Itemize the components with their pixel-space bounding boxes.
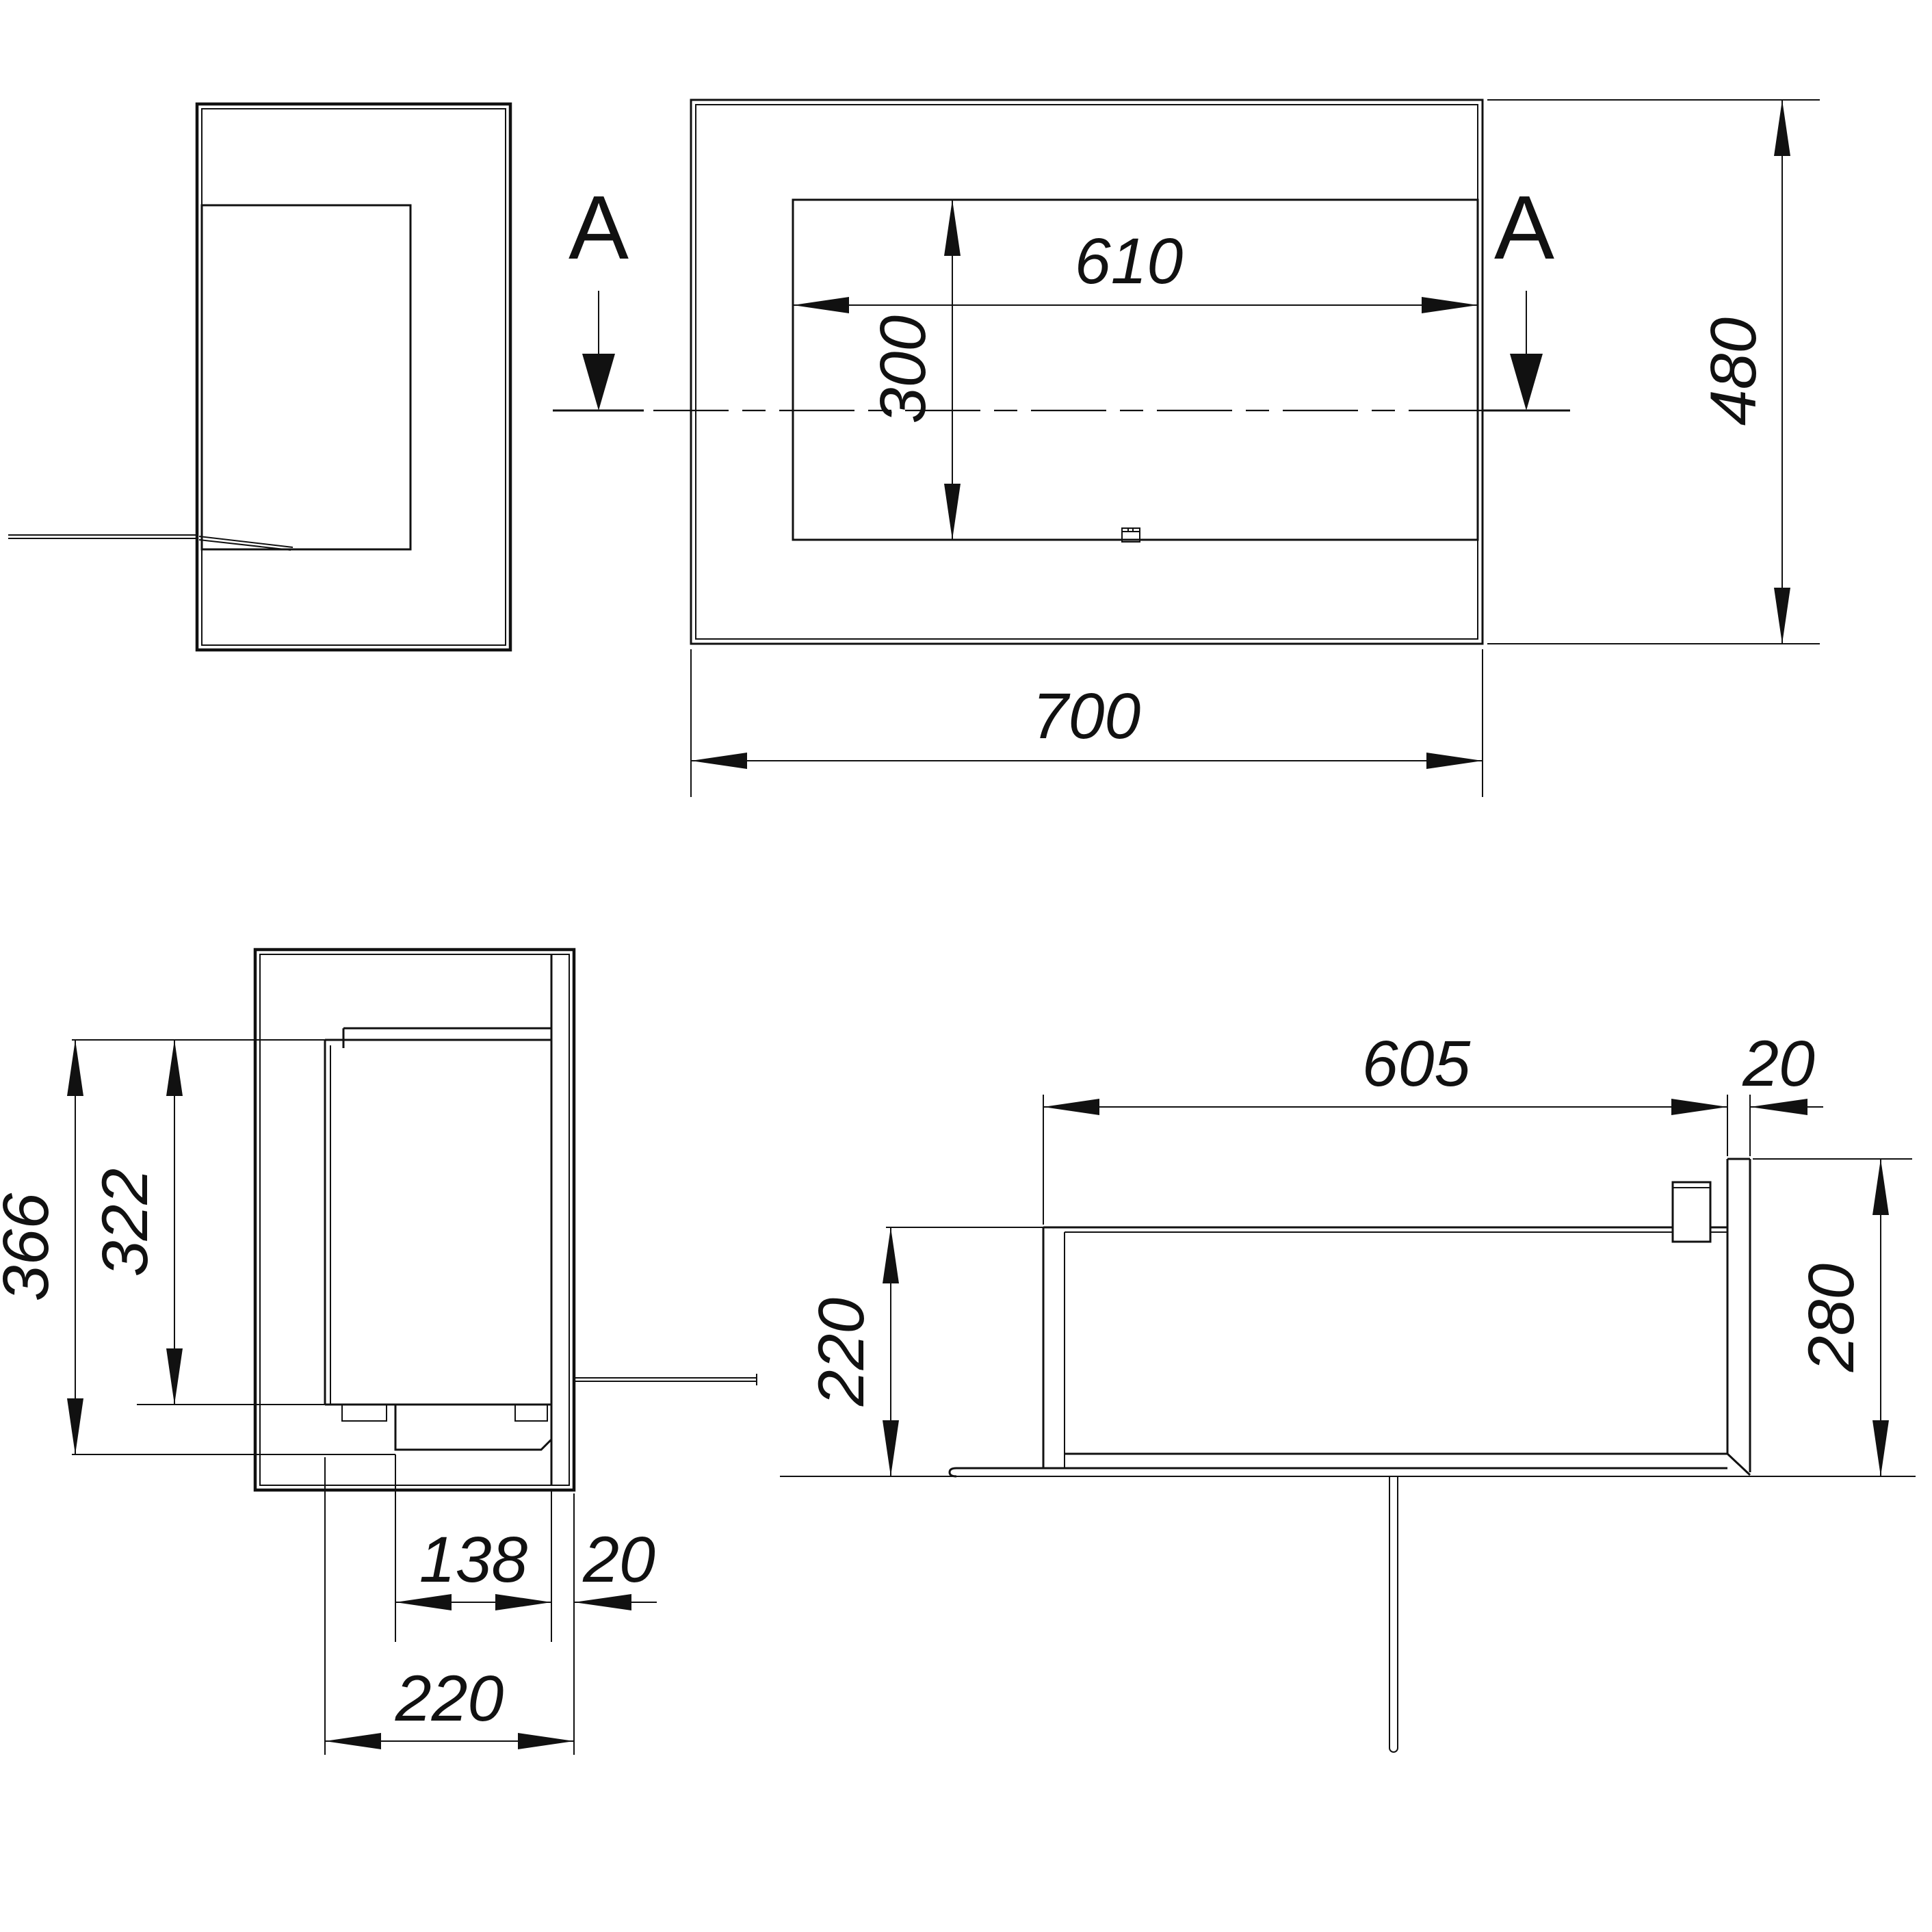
dim-glass-thickness-top: 20 [1742, 1028, 1823, 1156]
drawing-sheet: A A 610 300 480 [0, 0, 1932, 1932]
section-label-left: A [569, 177, 629, 278]
section-label-right: A [1494, 177, 1554, 278]
section-arrow-icon [1510, 354, 1543, 410]
dim-depth-top: 220 [805, 1227, 1043, 1476]
side-view-outer-body [197, 104, 510, 650]
section-outer-body [255, 950, 574, 1490]
section-arrow-icon [582, 354, 615, 410]
hanger-tab-left [342, 1405, 387, 1421]
dim-glass-thickness-text: 20 [582, 1524, 655, 1596]
side-view [8, 104, 510, 650]
dim-total-height: 366 [0, 1040, 395, 1454]
back-wall [1043, 1227, 1727, 1232]
dim-depth-text: 220 [395, 1662, 504, 1735]
top-section-view: 605 20 220 280 [780, 1028, 1916, 1752]
burner-tray [395, 1405, 551, 1450]
glass-plate [1727, 1159, 1750, 1475]
dimension-arrow-icon [574, 1594, 631, 1610]
section-inner-edge [260, 954, 569, 1485]
drain-leg [1389, 1476, 1398, 1752]
dimension-arrow-icon [1750, 1099, 1807, 1115]
dim-overall-height-text: 480 [1697, 317, 1770, 426]
dim-tray-width-text: 138 [419, 1524, 528, 1596]
dim-opening-height-text: 300 [867, 315, 939, 424]
side-panel-left [1043, 1227, 1065, 1468]
dim-depth-top-text: 220 [805, 1298, 878, 1407]
dim-interior-width-text: 605 [1362, 1028, 1472, 1100]
dim-total-depth: 280 [1753, 1159, 1912, 1476]
firebox [325, 1040, 551, 1405]
dim-tray-width: 138 [395, 1454, 551, 1642]
front-view-inner-edge [696, 105, 1478, 639]
dim-glass-thickness: 20 [574, 1524, 657, 1610]
side-view-firebox [202, 205, 410, 549]
front-view: A A 610 300 480 [553, 100, 1820, 797]
dim-overall-width-text: 700 [1032, 680, 1141, 753]
dim-overall-width: 700 [691, 649, 1483, 797]
dim-inner-height: 322 [89, 1040, 325, 1405]
dim-opening-width: 610 [793, 225, 1478, 305]
dim-total-depth-text: 280 [1795, 1264, 1868, 1373]
dim-inner-height-text: 322 [89, 1169, 161, 1277]
base-plate [950, 1468, 1727, 1476]
hanger-tab-right [515, 1405, 547, 1421]
side-section-view: 366 322 138 20 220 [0, 950, 757, 1755]
technical-drawing: A A 610 300 480 [0, 0, 1932, 1932]
section-marker-right: A [1494, 177, 1554, 410]
dim-opening-width-text: 610 [1075, 225, 1184, 298]
dim-opening-height: 300 [867, 200, 952, 540]
dim-total-height-text: 366 [0, 1193, 62, 1302]
lid-pulled-right [574, 1374, 757, 1385]
side-view-inner-edge [202, 109, 506, 645]
section-marker-left: A [569, 177, 629, 410]
front-view-outer-body [691, 100, 1483, 644]
burner-block [1673, 1182, 1710, 1242]
top-plate [325, 1028, 551, 1048]
dim-depth: 220 [325, 1457, 574, 1755]
dim-glass-thickness-top-text: 20 [1742, 1028, 1815, 1100]
dim-interior-width: 605 [1043, 1028, 1727, 1225]
